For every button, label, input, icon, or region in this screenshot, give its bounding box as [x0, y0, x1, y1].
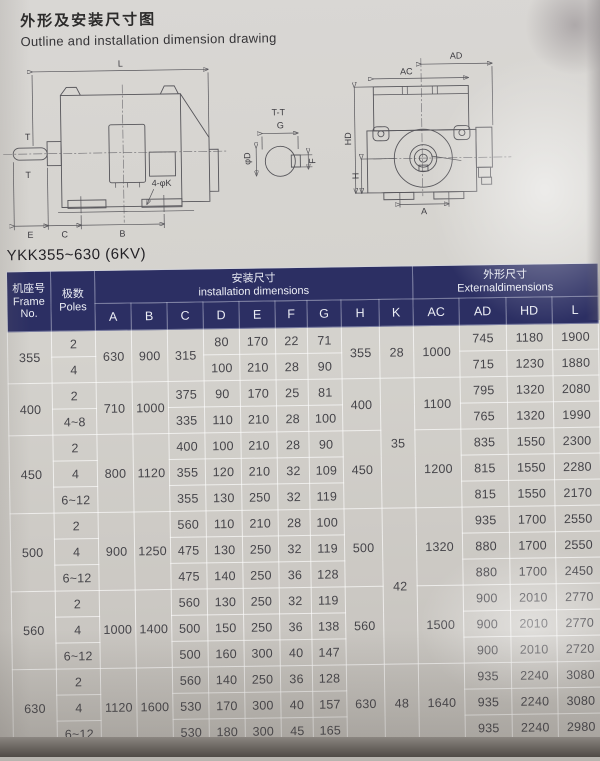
dim-label-A: A [421, 206, 427, 216]
dim-cell-F: 32 [278, 535, 310, 561]
dim-cell-D: 90 [204, 380, 240, 407]
col-header-E: E [239, 301, 275, 329]
poles-cell: 2 [53, 435, 97, 462]
dim-label-B: B [119, 229, 125, 239]
dim-cell-C: 315 [167, 329, 204, 382]
dim-cell-E: 250 [243, 588, 279, 615]
col-header-D: D [203, 301, 239, 329]
dim-cell-HD: 2240 [511, 662, 557, 689]
dim-cell-C: 400 [169, 433, 205, 460]
dim-cell-C: 335 [168, 407, 204, 434]
col-header-C: C [167, 302, 203, 330]
dim-cell-L: 2720 [557, 635, 600, 662]
dim-cell-AD: 935 [465, 714, 512, 741]
dim-cell-L: 1880 [553, 349, 599, 376]
dim-cell-D: 180 [209, 718, 245, 745]
dim-cell-G: 119 [310, 535, 344, 562]
poles-cell: 6~12 [54, 487, 98, 514]
dim-cell-F: 28 [276, 353, 308, 379]
dim-cell-G: 71 [307, 327, 341, 354]
dim-cell-H: 400 [342, 378, 381, 431]
dim-cell-G: 165 [313, 717, 347, 744]
dim-cell-HD: 2240 [512, 688, 558, 715]
poles-cell: 4 [54, 539, 98, 566]
dim-cell-C: 560 [171, 589, 207, 616]
dim-cell-AD: 935 [464, 662, 511, 689]
frame-cell: 560 [11, 591, 56, 670]
poles-cell: 2 [54, 513, 98, 540]
dim-cell-H: 630 [346, 664, 385, 743]
dim-cell-HD: 1230 [507, 350, 553, 377]
dim-cell-L: 2770 [556, 583, 600, 610]
dim-cell-E: 250 [243, 562, 279, 589]
frame-cell: 450 [9, 435, 54, 514]
frame-cell: 400 [8, 383, 53, 436]
dim-label-phiD: φD [242, 152, 252, 165]
side-view-drawing: L T T 4-φK [2, 53, 233, 244]
dim-cell-B: 1400 [135, 589, 172, 668]
dim-cell-F: 40 [281, 691, 313, 717]
dim-cell-H: 355 [341, 326, 380, 379]
dim-cell-F: 36 [280, 613, 312, 639]
header-external-group: 外形尺寸 Externaldimensions [412, 263, 597, 299]
dim-cell-AD: 835 [461, 428, 508, 455]
dim-cell-G: 100 [310, 509, 344, 536]
model-label: YKK355~630 (6KV) [7, 245, 147, 264]
dim-cell-AD: 900 [464, 636, 511, 663]
dim-cell-D: 150 [208, 614, 244, 641]
dim-cell-E: 250 [242, 484, 278, 511]
dim-cell-D: 140 [208, 666, 244, 693]
dim-cell-E: 210 [240, 406, 276, 433]
dim-cell-E: 170 [239, 328, 275, 355]
poles-cell: 2 [55, 591, 99, 618]
dim-cell-AC: 1640 [418, 663, 465, 742]
dim-cell-A: 710 [96, 382, 133, 435]
dim-cell-AD: 935 [462, 506, 509, 533]
dim-cell-H: 500 [344, 508, 383, 587]
dim-cell-L: 3080 [557, 661, 600, 688]
catalog-page-photo: 外形及安装尺寸图 Outline and installation dimens… [0, 0, 600, 757]
dim-cell-E: 250 [242, 536, 278, 563]
dim-cell-A: 1120 [100, 668, 137, 747]
col-header-L: L [552, 296, 598, 324]
dim-cell-HD: 2240 [512, 714, 558, 741]
dim-cell-HD: 1700 [509, 532, 555, 559]
dim-cell-C: 475 [170, 537, 206, 564]
dim-cell-AD: 815 [461, 454, 508, 481]
dim-cell-G: 128 [311, 561, 345, 588]
header-frame-en2: No. [7, 308, 50, 321]
dim-cell-L: 2770 [557, 609, 600, 636]
dim-cell-A: 630 [95, 330, 132, 383]
dim-cell-G: 100 [308, 405, 342, 432]
dim-cell-F: 36 [280, 665, 312, 691]
dim-cell-C: 355 [169, 459, 205, 486]
dim-label-AC: AC [400, 66, 413, 76]
dim-cell-D: 160 [208, 640, 244, 667]
dim-cell-AD: 900 [463, 584, 510, 611]
dim-cell-E: 170 [240, 380, 276, 407]
dim-cell-F: 28 [276, 405, 308, 431]
dim-cell-F: 32 [279, 587, 311, 613]
dim-cell-B: 1250 [134, 511, 171, 590]
col-header-HD: HD [506, 297, 552, 325]
dim-cell-L: 2080 [553, 375, 599, 402]
dim-cell-F: 45 [281, 717, 313, 743]
dim-cell-HD: 1550 [508, 428, 554, 455]
dim-cell-F: 32 [278, 483, 310, 509]
header-installation-group: 安装尺寸 installation dimensions [94, 266, 412, 304]
poles-cell: 2 [56, 668, 100, 695]
header-poles: 极数 Poles [50, 271, 95, 332]
dim-cell-C: 560 [172, 667, 208, 694]
dim-label-C: C [61, 229, 68, 239]
dim-label-AD: AD [450, 51, 463, 61]
frame-cell: 355 [7, 331, 52, 384]
dim-cell-C: 560 [170, 511, 206, 538]
dim-cell-L: 2170 [555, 479, 600, 506]
dim-cell-G: 90 [309, 431, 343, 458]
dim-cell-L: 1900 [552, 323, 598, 350]
col-header-AD: AD [459, 297, 506, 325]
dim-cell-C: 500 [172, 615, 208, 642]
dim-cell-AC: 1000 [413, 325, 460, 378]
dim-cell-AD: 880 [462, 532, 509, 559]
dim-cell-C: 375 [168, 381, 204, 408]
dim-cell-C: 530 [173, 693, 209, 720]
dim-cell-AC: 1100 [414, 377, 461, 430]
dim-cell-D: 130 [207, 588, 243, 615]
dim-cell-F: 28 [277, 431, 309, 457]
dim-cell-A: 1000 [99, 590, 136, 669]
col-header-A: A [95, 303, 131, 331]
page-title-en: Outline and installation dimension drawi… [20, 30, 276, 49]
dim-cell-L: 2280 [554, 453, 600, 480]
dim-cell-AD: 935 [465, 688, 512, 715]
dim-cell-HD: 1700 [510, 558, 556, 585]
dim-cell-B: 1000 [132, 381, 169, 434]
header-poles-zh: 极数 [51, 288, 94, 302]
dim-cell-C: 500 [172, 641, 208, 668]
dim-cell-E: 300 [244, 640, 280, 667]
header-frame-en1: Frame [7, 296, 50, 309]
dim-cell-HD: 2010 [511, 610, 557, 637]
dim-cell-K: 48 [384, 664, 419, 742]
dim-cell-K: 35 [380, 378, 416, 508]
dim-cell-E: 250 [244, 614, 280, 641]
poles-cell: 4 [57, 694, 101, 721]
dim-cell-G: 138 [312, 613, 346, 640]
poles-cell: 2 [52, 383, 96, 410]
dim-cell-D: 100 [204, 354, 240, 381]
page-content: 外形及安装尺寸图 Outline and installation dimens… [0, 0, 600, 761]
dim-cell-B: 1120 [133, 433, 170, 512]
dim-cell-A: 800 [97, 434, 134, 513]
frame-cell: 500 [10, 513, 55, 592]
header-frame: 机座号 Frame No. [6, 271, 51, 332]
dim-cell-E: 300 [245, 718, 281, 745]
frame-cell: 630 [12, 669, 57, 748]
dim-label-H: H [351, 173, 361, 180]
dim-cell-HD: 2010 [511, 636, 557, 663]
dim-label-G: G [277, 120, 284, 130]
page-title-zh: 外形及安装尺寸图 [20, 6, 276, 31]
dim-cell-G: 119 [311, 587, 345, 614]
dim-cell-AC: 1200 [415, 429, 462, 508]
dim-cell-K: 42 [382, 508, 418, 664]
dim-cell-AC: 1320 [416, 507, 463, 586]
end-view-drawing: AD AC [342, 42, 540, 245]
header-poles-en: Poles [51, 301, 94, 314]
poles-cell: 6~12 [56, 643, 100, 670]
dim-cell-D: 110 [204, 406, 240, 433]
dim-cell-F: 28 [278, 509, 310, 535]
dim-cell-E: 250 [244, 666, 280, 693]
dim-cell-HD: 1550 [509, 480, 555, 507]
header-external-en: Externaldimensions [413, 280, 597, 295]
dim-cell-F: 40 [280, 639, 312, 665]
poles-cell: 4~8 [52, 409, 96, 436]
poles-cell: 4 [53, 461, 97, 488]
dimension-drawings: L T T 4-φK [0, 0, 595, 4]
dim-cell-HD: 2010 [510, 584, 556, 611]
section-mark-bottom: T [25, 170, 31, 180]
dim-cell-AD: 795 [460, 376, 507, 403]
poles-cell: 4 [52, 357, 96, 384]
dim-cell-F: 22 [275, 327, 307, 353]
poles-cell: 2 [51, 331, 95, 358]
dim-cell-F: 25 [276, 379, 308, 405]
dim-cell-D: 130 [206, 536, 242, 563]
dim-cell-F: 36 [279, 561, 311, 587]
col-header-H: H [341, 299, 379, 327]
dim-cell-G: 147 [312, 639, 346, 666]
dim-cell-G: 109 [309, 457, 343, 484]
dim-cell-HD: 1320 [507, 376, 553, 403]
dim-cell-L: 2300 [554, 427, 600, 454]
dim-cell-C: 530 [173, 719, 209, 746]
poles-cell: 4 [56, 617, 100, 644]
col-header-B: B [131, 302, 167, 330]
dim-cell-L: 2450 [556, 557, 600, 584]
dim-cell-HD: 1320 [507, 402, 553, 429]
dim-cell-E: 210 [242, 510, 278, 537]
shaft-section-drawing: T-T G φD F [233, 103, 330, 216]
dim-cell-AD: 745 [459, 324, 506, 351]
dim-cell-K: 28 [379, 326, 414, 378]
col-header-F: F [275, 300, 307, 327]
dim-cell-A: 900 [98, 512, 135, 591]
dim-label-E: E [27, 230, 33, 240]
col-header-K: K [379, 299, 413, 327]
poles-cell: 6~12 [57, 720, 101, 747]
section-mark-top: T [25, 132, 31, 142]
dim-cell-G: 119 [310, 483, 344, 510]
dim-cell-E: 210 [241, 432, 277, 459]
dim-cell-D: 120 [205, 458, 241, 485]
dim-cell-G: 157 [313, 691, 347, 718]
mounting-holes-label: 4-φK [152, 178, 172, 188]
dim-cell-G: 81 [308, 379, 342, 406]
dim-cell-L: 3080 [558, 687, 600, 714]
dim-cell-HD: 1700 [509, 506, 555, 533]
dim-cell-AC: 1500 [417, 585, 464, 664]
dim-cell-H: 450 [343, 430, 382, 509]
dim-cell-AD: 900 [464, 610, 511, 637]
dim-cell-E: 210 [241, 458, 277, 485]
poles-cell: 6~12 [55, 565, 99, 592]
dim-cell-L: 1990 [553, 401, 599, 428]
dimension-table: 机座号 Frame No. 极数 Poles 安装尺寸 installation… [6, 263, 600, 749]
dim-cell-F: 32 [277, 457, 309, 483]
dim-cell-HD: 1550 [508, 454, 554, 481]
section-title: T-T [272, 107, 286, 117]
dim-cell-B: 1600 [136, 667, 173, 746]
dim-cell-C: 475 [171, 563, 207, 590]
dim-cell-AD: 765 [460, 402, 507, 429]
dim-cell-B: 900 [131, 329, 168, 382]
dim-cell-G: 90 [308, 353, 342, 380]
dim-label-F: F [307, 158, 317, 164]
dim-cell-C: 355 [170, 485, 206, 512]
dim-cell-AD: 880 [463, 558, 510, 585]
dim-cell-D: 110 [206, 510, 242, 537]
dim-label-HD: HD [343, 132, 353, 146]
dim-cell-L: 2550 [555, 505, 600, 532]
dim-cell-L: 2980 [558, 713, 600, 740]
dim-cell-D: 170 [209, 692, 245, 719]
dim-cell-D: 80 [203, 328, 239, 355]
dim-cell-AD: 715 [460, 350, 507, 377]
dim-cell-L: 2550 [555, 531, 600, 558]
col-header-AC: AC [413, 298, 459, 326]
dim-cell-H: 560 [345, 586, 384, 665]
dim-cell-AD: 815 [462, 480, 509, 507]
header-frame-zh: 机座号 [7, 283, 50, 297]
dim-cell-E: 210 [240, 354, 276, 381]
title-block: 外形及安装尺寸图 Outline and installation dimens… [20, 6, 277, 49]
dim-label-L: L [118, 59, 123, 69]
dim-cell-D: 100 [205, 432, 241, 459]
dim-cell-HD: 1180 [506, 324, 552, 351]
dim-cell-D: 140 [207, 562, 243, 589]
col-header-G: G [307, 300, 341, 328]
dim-cell-G: 128 [312, 665, 346, 692]
dim-cell-D: 130 [206, 484, 242, 511]
dim-cell-E: 300 [245, 692, 281, 719]
